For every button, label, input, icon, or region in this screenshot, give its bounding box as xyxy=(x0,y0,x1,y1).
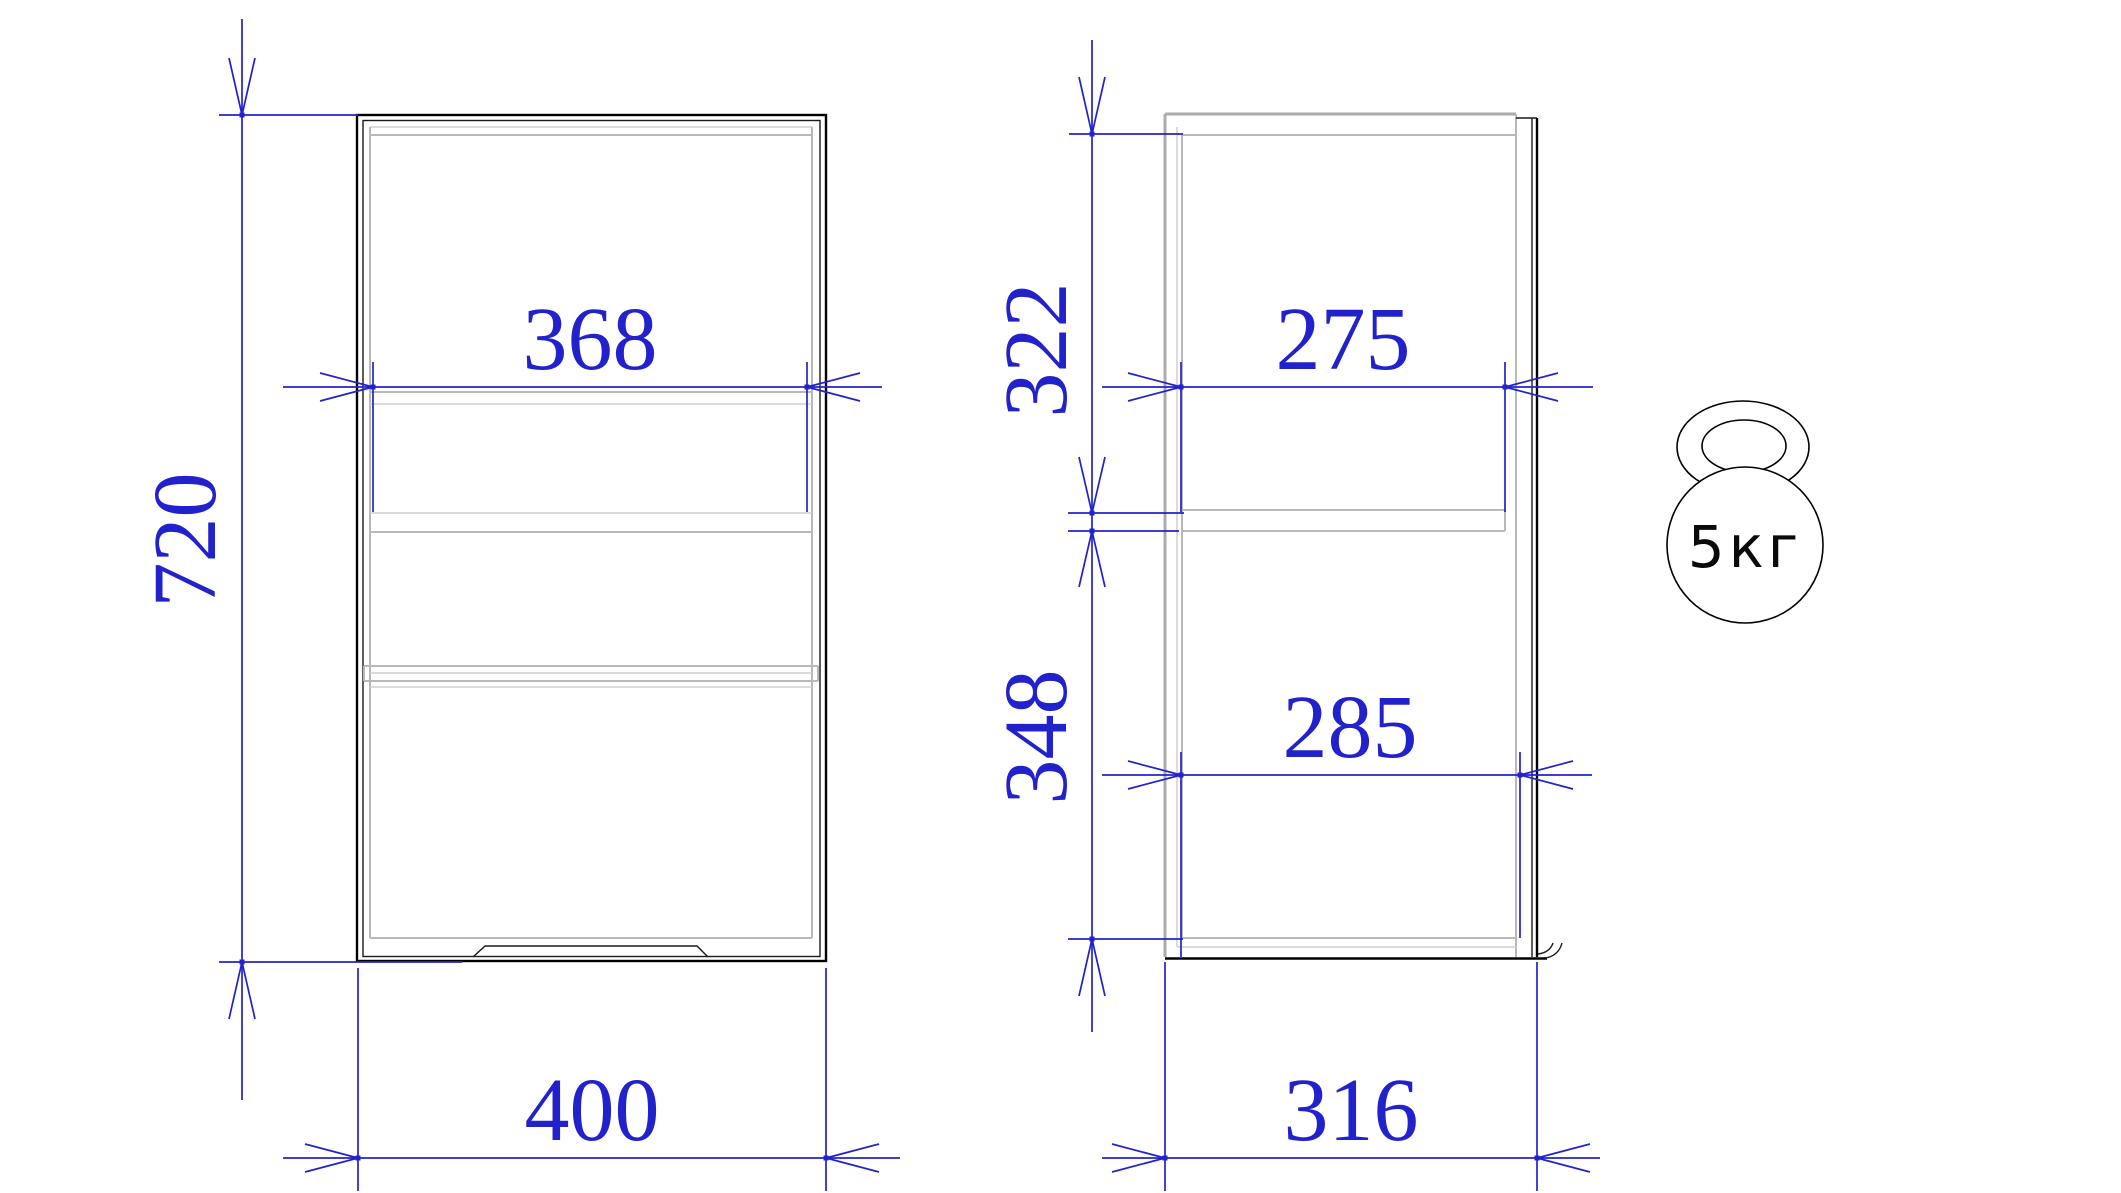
side-view xyxy=(1165,114,1562,959)
kettlebell-handle-inner xyxy=(1702,420,1786,472)
dim-interior-width-368: 368 xyxy=(283,290,882,512)
dim-285-label: 285 xyxy=(1283,678,1418,777)
handle-notch xyxy=(473,946,708,957)
dim-depth-316: 316 xyxy=(1102,962,1600,1191)
technical-drawing-canvas: 720 368 400 xyxy=(0,0,2121,1193)
weight-limit-label: 5кг xyxy=(1688,513,1802,581)
dim-720-label: 720 xyxy=(136,473,235,608)
weight-limit-icon: 5кг xyxy=(1667,401,1823,623)
dim-depth-275: 275 xyxy=(1102,290,1593,512)
dim-depth-285: 285 xyxy=(1102,678,1592,957)
dim-348-label: 348 xyxy=(987,670,1086,805)
dim-width-400: 400 xyxy=(283,968,900,1191)
door-handle-curl-inner xyxy=(1538,943,1553,954)
dim-322-label: 322 xyxy=(987,283,1086,418)
front-view xyxy=(357,115,826,961)
dim-368-label: 368 xyxy=(523,290,658,389)
dim-heights-322-348: 322 348 xyxy=(987,40,1184,1032)
front-view-outline-inner xyxy=(363,121,820,957)
dim-316-label: 316 xyxy=(1284,1061,1419,1160)
dim-275-label: 275 xyxy=(1276,290,1411,389)
dim-400-label: 400 xyxy=(525,1061,660,1160)
cabinet-drawing: 720 368 400 xyxy=(0,0,2121,1193)
front-view-outline-outer xyxy=(357,115,826,961)
